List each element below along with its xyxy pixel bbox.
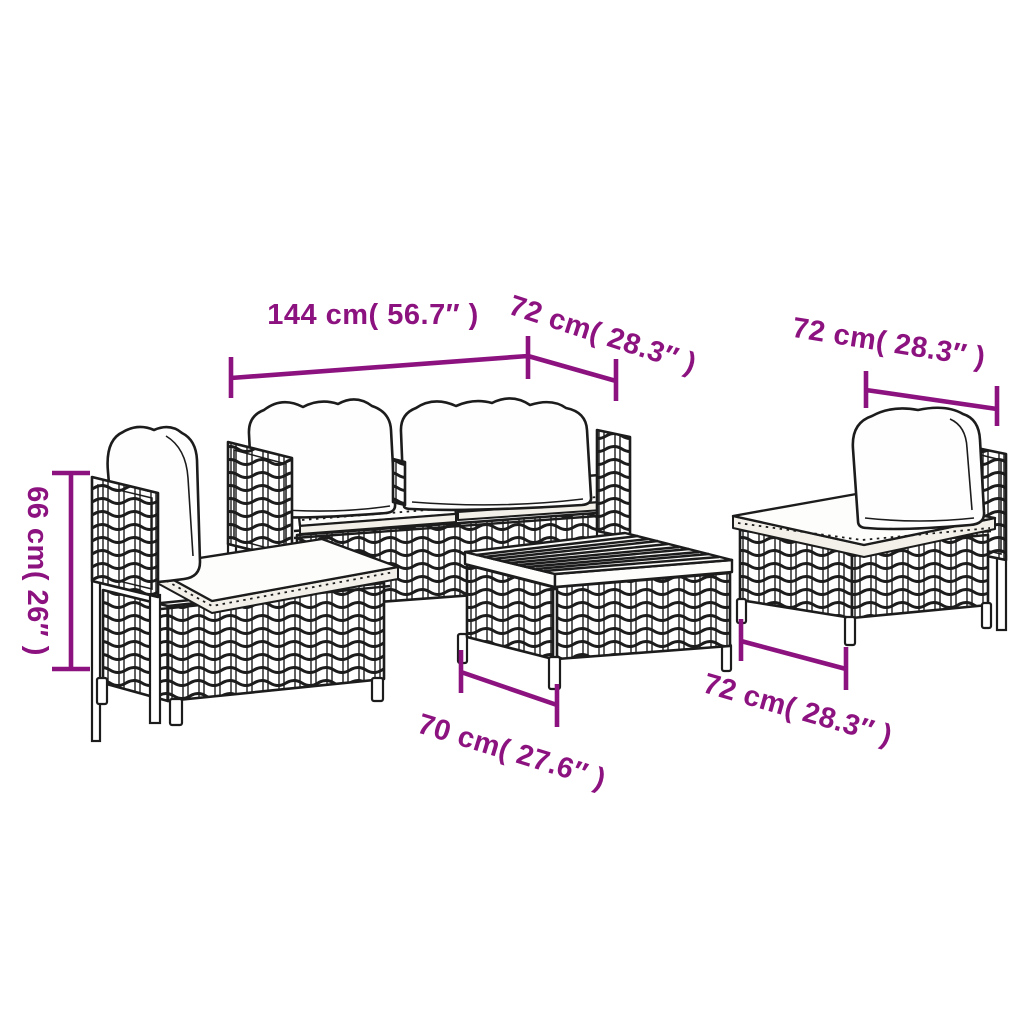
- back-cushion: [401, 398, 591, 509]
- dimension-line: [231, 336, 528, 398]
- dimension-line: [461, 650, 557, 727]
- dimension-label: 72 cm( 28.3″ ): [790, 312, 988, 374]
- armrest-rattan-panel: [597, 430, 630, 538]
- dimension-line: [52, 473, 90, 669]
- dimension-label: 70 cm( 27.6″ ): [414, 708, 610, 796]
- module-leg: [97, 678, 107, 704]
- sofa-middle-module-right: [733, 408, 1006, 645]
- module-leg: [982, 603, 991, 628]
- dimension-line: [741, 619, 846, 690]
- sofa-center-post: [393, 459, 405, 505]
- dim-sofa-depth: 72 cm( 28.3″ ): [505, 290, 700, 401]
- armrest-rattan-panel: [228, 442, 292, 560]
- dimension-label: 72 cm( 28.3″ ): [700, 668, 896, 753]
- dim-sofa-width: 144 cm( 56.7″ ): [231, 299, 528, 398]
- dim-table-width: 70 cm( 27.6″ ): [414, 650, 610, 796]
- backrest-rattan-panel: [92, 477, 158, 597]
- module-leg: [170, 699, 182, 725]
- module-leg: [372, 678, 383, 701]
- table-side-rattan: [557, 573, 730, 659]
- diagram-canvas: 144 cm( 56.7″ ) 72 cm( 28.3″ ) 72 cm( 28…: [0, 0, 1024, 1024]
- coffee-table: [458, 533, 732, 689]
- module-frame-leg: [997, 556, 1006, 630]
- dimension-label: 144 cm( 56.7″ ): [267, 299, 479, 331]
- furniture-dimension-diagram: 144 cm( 56.7″ ) 72 cm( 28.3″ ) 72 cm( 28…: [0, 0, 1024, 1024]
- dim-module-height: 66 cm( 26″ ): [21, 473, 90, 669]
- dimension-label: 66 cm( 26″ ): [21, 486, 53, 656]
- module-frame-leg: [92, 581, 100, 741]
- dimension-line: [528, 356, 616, 401]
- dimension-label: 72 cm( 28.3″ ): [505, 290, 700, 381]
- table-leg: [722, 644, 731, 671]
- back-cushion: [853, 408, 984, 529]
- module-leg: [845, 617, 855, 645]
- module-frame-leg: [150, 595, 160, 723]
